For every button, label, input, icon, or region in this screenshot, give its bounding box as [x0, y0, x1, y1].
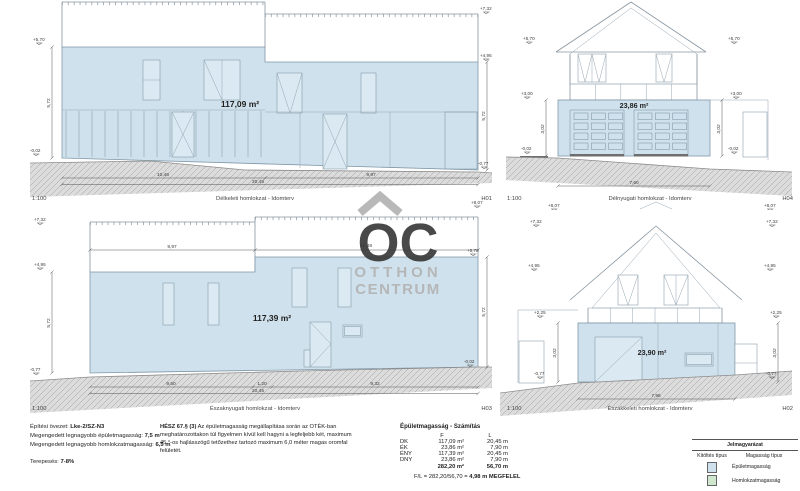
p4-title: Északkeleti homlokzat - Idomterv — [607, 405, 692, 412]
elevation-panel-eny: 117,39 m² 9,97 10,48 9,50 1,20 9,32 20,4… — [0, 213, 500, 417]
p2-mark-ridge-left: +8,07 — [548, 203, 560, 208]
p2-dim-total: 7,60 — [629, 180, 639, 186]
p4-height-left: 3,02 — [552, 348, 558, 358]
calc-total-f: 282,20 m² — [420, 464, 472, 470]
p2-mark-mid-right: +3,00 — [730, 91, 742, 96]
terrain-slope-label: Terepesés: — [30, 459, 59, 465]
p1-mark-base-left: -0,02 — [30, 148, 41, 153]
zone-value: Lke-2/SZ-N3 — [70, 424, 104, 430]
legend-row-building: Épületmagasság — [692, 462, 798, 473]
p1-area-label: 117,09 m² — [221, 99, 259, 109]
calc-title: Épületmagasság - Számítás — [400, 423, 530, 430]
p3-scale: 1:100 — [32, 406, 47, 412]
calc-total-row: 282,20 m² 56,70 m — [400, 464, 530, 470]
legend-label-building: Épületmagasság — [732, 464, 796, 470]
max-building-height-value: 7,5 m — [145, 433, 160, 439]
legend-label-facade: Homlokzatmagasság — [732, 478, 796, 484]
p1-code: H01 — [481, 196, 492, 202]
p3-mark-base-right: -0,02 — [464, 359, 475, 364]
legend-col-height: Magasság típus — [732, 453, 796, 459]
p4-code: H02 — [782, 406, 793, 412]
p2-ground — [506, 157, 792, 196]
p4-mark-base-right: -0,77 — [766, 371, 777, 376]
p4-scale: 1:100 — [507, 406, 522, 412]
p3-dim-bottom-c: 9,32 — [370, 381, 380, 387]
p3-dim-bottom-b: 1,20 — [257, 381, 267, 387]
p1-mark-top-right: +7,32 — [480, 6, 492, 11]
p4-building — [518, 226, 757, 383]
p3-mark-base-left: -0,77 — [30, 367, 41, 372]
p2-scale: 1:100 — [507, 196, 522, 202]
p3-dim-top-right: 10,48 — [360, 243, 372, 249]
p1-mark-base-right: -0,77 — [478, 161, 489, 166]
elevation-panel-dk: 117,09 m² 10,46 9,97 20,45 5,72 5,72 +5,… — [0, 0, 500, 210]
p1-height-right: 5,72 — [481, 111, 487, 121]
p1-dim-left: 10,46 — [157, 172, 169, 178]
p1-dim-total: 20,45 — [252, 179, 264, 185]
calc-total-l: 56,70 m — [472, 464, 516, 470]
p1-mark-eave-right: +4,95 — [480, 53, 492, 58]
p4-dim-total: 7,96 — [651, 393, 661, 399]
p3-building — [90, 217, 478, 373]
legend-col-fill: Kitöltés típus — [692, 453, 732, 459]
p2-height-right: 3,02 — [716, 124, 722, 134]
p3-mark-top-left: +7,32 — [34, 217, 46, 222]
elevation-panel-ek: 23,90 m² 7,96 3,02 3,02 +7,32 +4,95 +2,2… — [500, 213, 800, 417]
p3-title: Északnyugati homlokzat - Idomterv — [210, 405, 300, 412]
p2-mark-eave-left: +5,70 — [523, 36, 535, 41]
p3-height-right: 5,72 — [481, 307, 487, 317]
p1-dim-right: 9,97 — [366, 172, 376, 178]
facade-height-swatch — [707, 475, 717, 486]
p1-mark-eave-left: +5,70 — [33, 37, 45, 42]
calc-result-value: 4,98 m MEGFELEL — [469, 474, 520, 480]
p4-mark-mid-right: +2,25 — [770, 310, 782, 315]
terrain-slope-line: Terepesés: 7-8% — [30, 458, 190, 467]
max-building-height-label: Megengedett legnagyobb épületmagasság: — [30, 433, 143, 439]
hesz-reference: HÉSZ 67.§ (3) — [160, 424, 196, 430]
p2-height-left: 3,02 — [540, 124, 546, 134]
p4-area-label: 23,90 m² — [638, 348, 667, 357]
p4-mark-top-left: +7,32 — [530, 219, 542, 224]
p4-mark-top-right: +7,32 — [766, 219, 778, 224]
p2-mark-ridge-right: +8,07 — [764, 203, 776, 208]
p1-caption: 1:100 Délkeleti homlokzat - Idomterv H01 — [32, 196, 492, 202]
terrain-slope-value: 7-8% — [60, 459, 74, 465]
p2-mark-base-right: -0,02 — [728, 146, 739, 151]
p1-scale: 1:100 — [32, 196, 47, 202]
p2-mark-eave-right: +5,70 — [728, 36, 740, 41]
elevation-panel-dny: 23,86 m² 7,60 3,02 3,02 +5,70 +3,00 -0,0… — [500, 0, 800, 210]
p4-mark-upper-left: +4,95 — [528, 263, 540, 268]
zone-label: Építési övezet: — [30, 424, 69, 430]
max-facade-height-label: Megengedett legnagyobb homlokzatmagasság… — [30, 442, 154, 448]
p2-mark-base-left: -0,02 — [521, 146, 532, 151]
legend-title: Jelmagyarázat — [692, 442, 798, 451]
p3-dim-total: 20,45 — [252, 388, 264, 394]
p2-title: Délnyugati homlokzat - Idomterv — [608, 196, 691, 202]
p4-mark-mid-left: +2,25 — [534, 310, 546, 315]
p1-height-left: 5,72 — [46, 98, 52, 108]
drawing-sheet: 117,09 m² 10,46 9,97 20,45 5,72 5,72 +5,… — [0, 0, 800, 491]
p2-area-label: 23,86 m² — [620, 101, 649, 110]
legend-row-facade: Homlokzatmagasság — [692, 475, 798, 486]
p3-mark-eave-right: +5,70 — [467, 248, 479, 253]
calc-row-dny: DNY 23,86 m² 7,90 m — [400, 457, 530, 463]
p2-code: H04 — [782, 196, 793, 202]
hesz-regulation-note: HÉSZ 67.§ (3) Az épületmagasság megállap… — [160, 423, 358, 455]
calc-result-line: F/L = 282,20/56,70 = 4,98 m MEGFELEL — [400, 474, 530, 480]
p3-dim-top-left: 9,97 — [167, 244, 177, 250]
p2-caption: 1:100 Délnyugati homlokzat - Idomterv H0… — [507, 196, 794, 202]
building-height-calculation: Épületmagasság - Számítás F L DK 117,09 … — [400, 423, 530, 480]
p3-area-label: 117,39 m² — [253, 313, 291, 323]
p4-mark-upper-right: +4,95 — [764, 263, 776, 268]
p3-dim-bottom-a: 9,50 — [166, 381, 176, 387]
p3-height-left: 5,72 — [46, 318, 52, 328]
legend-header: Kitöltés típus Magasság típus — [692, 453, 798, 459]
legend: Jelmagyarázat Kitöltés típus Magasság tí… — [692, 439, 798, 486]
p4-height-right: 3,02 — [772, 348, 778, 358]
building-height-swatch — [707, 462, 717, 473]
p2-mark-mid-left: +3,00 — [521, 91, 533, 96]
p3-code: H03 — [481, 406, 492, 412]
p3-mark-eave-left: +4,95 — [34, 262, 46, 267]
p4-mark-base-left: -0,77 — [534, 371, 545, 376]
p1-building — [62, 2, 478, 170]
p1-title: Délkeleti homlokzat - Idomterv — [216, 196, 294, 202]
